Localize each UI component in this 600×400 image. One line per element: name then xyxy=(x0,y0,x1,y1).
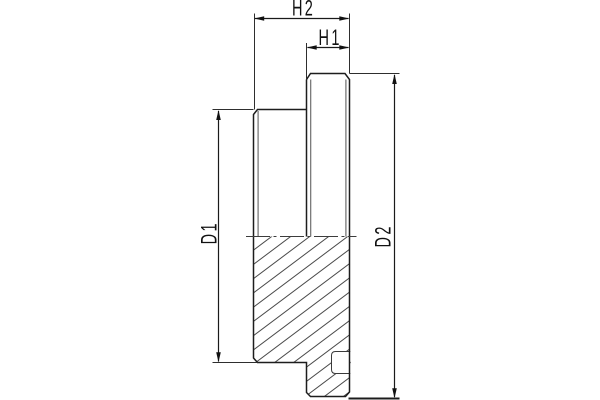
svg-text:H2: H2 xyxy=(292,0,315,20)
svg-text:H1: H1 xyxy=(319,25,342,50)
svg-text:D2: D2 xyxy=(370,224,395,247)
svg-text:D1: D1 xyxy=(196,221,221,244)
